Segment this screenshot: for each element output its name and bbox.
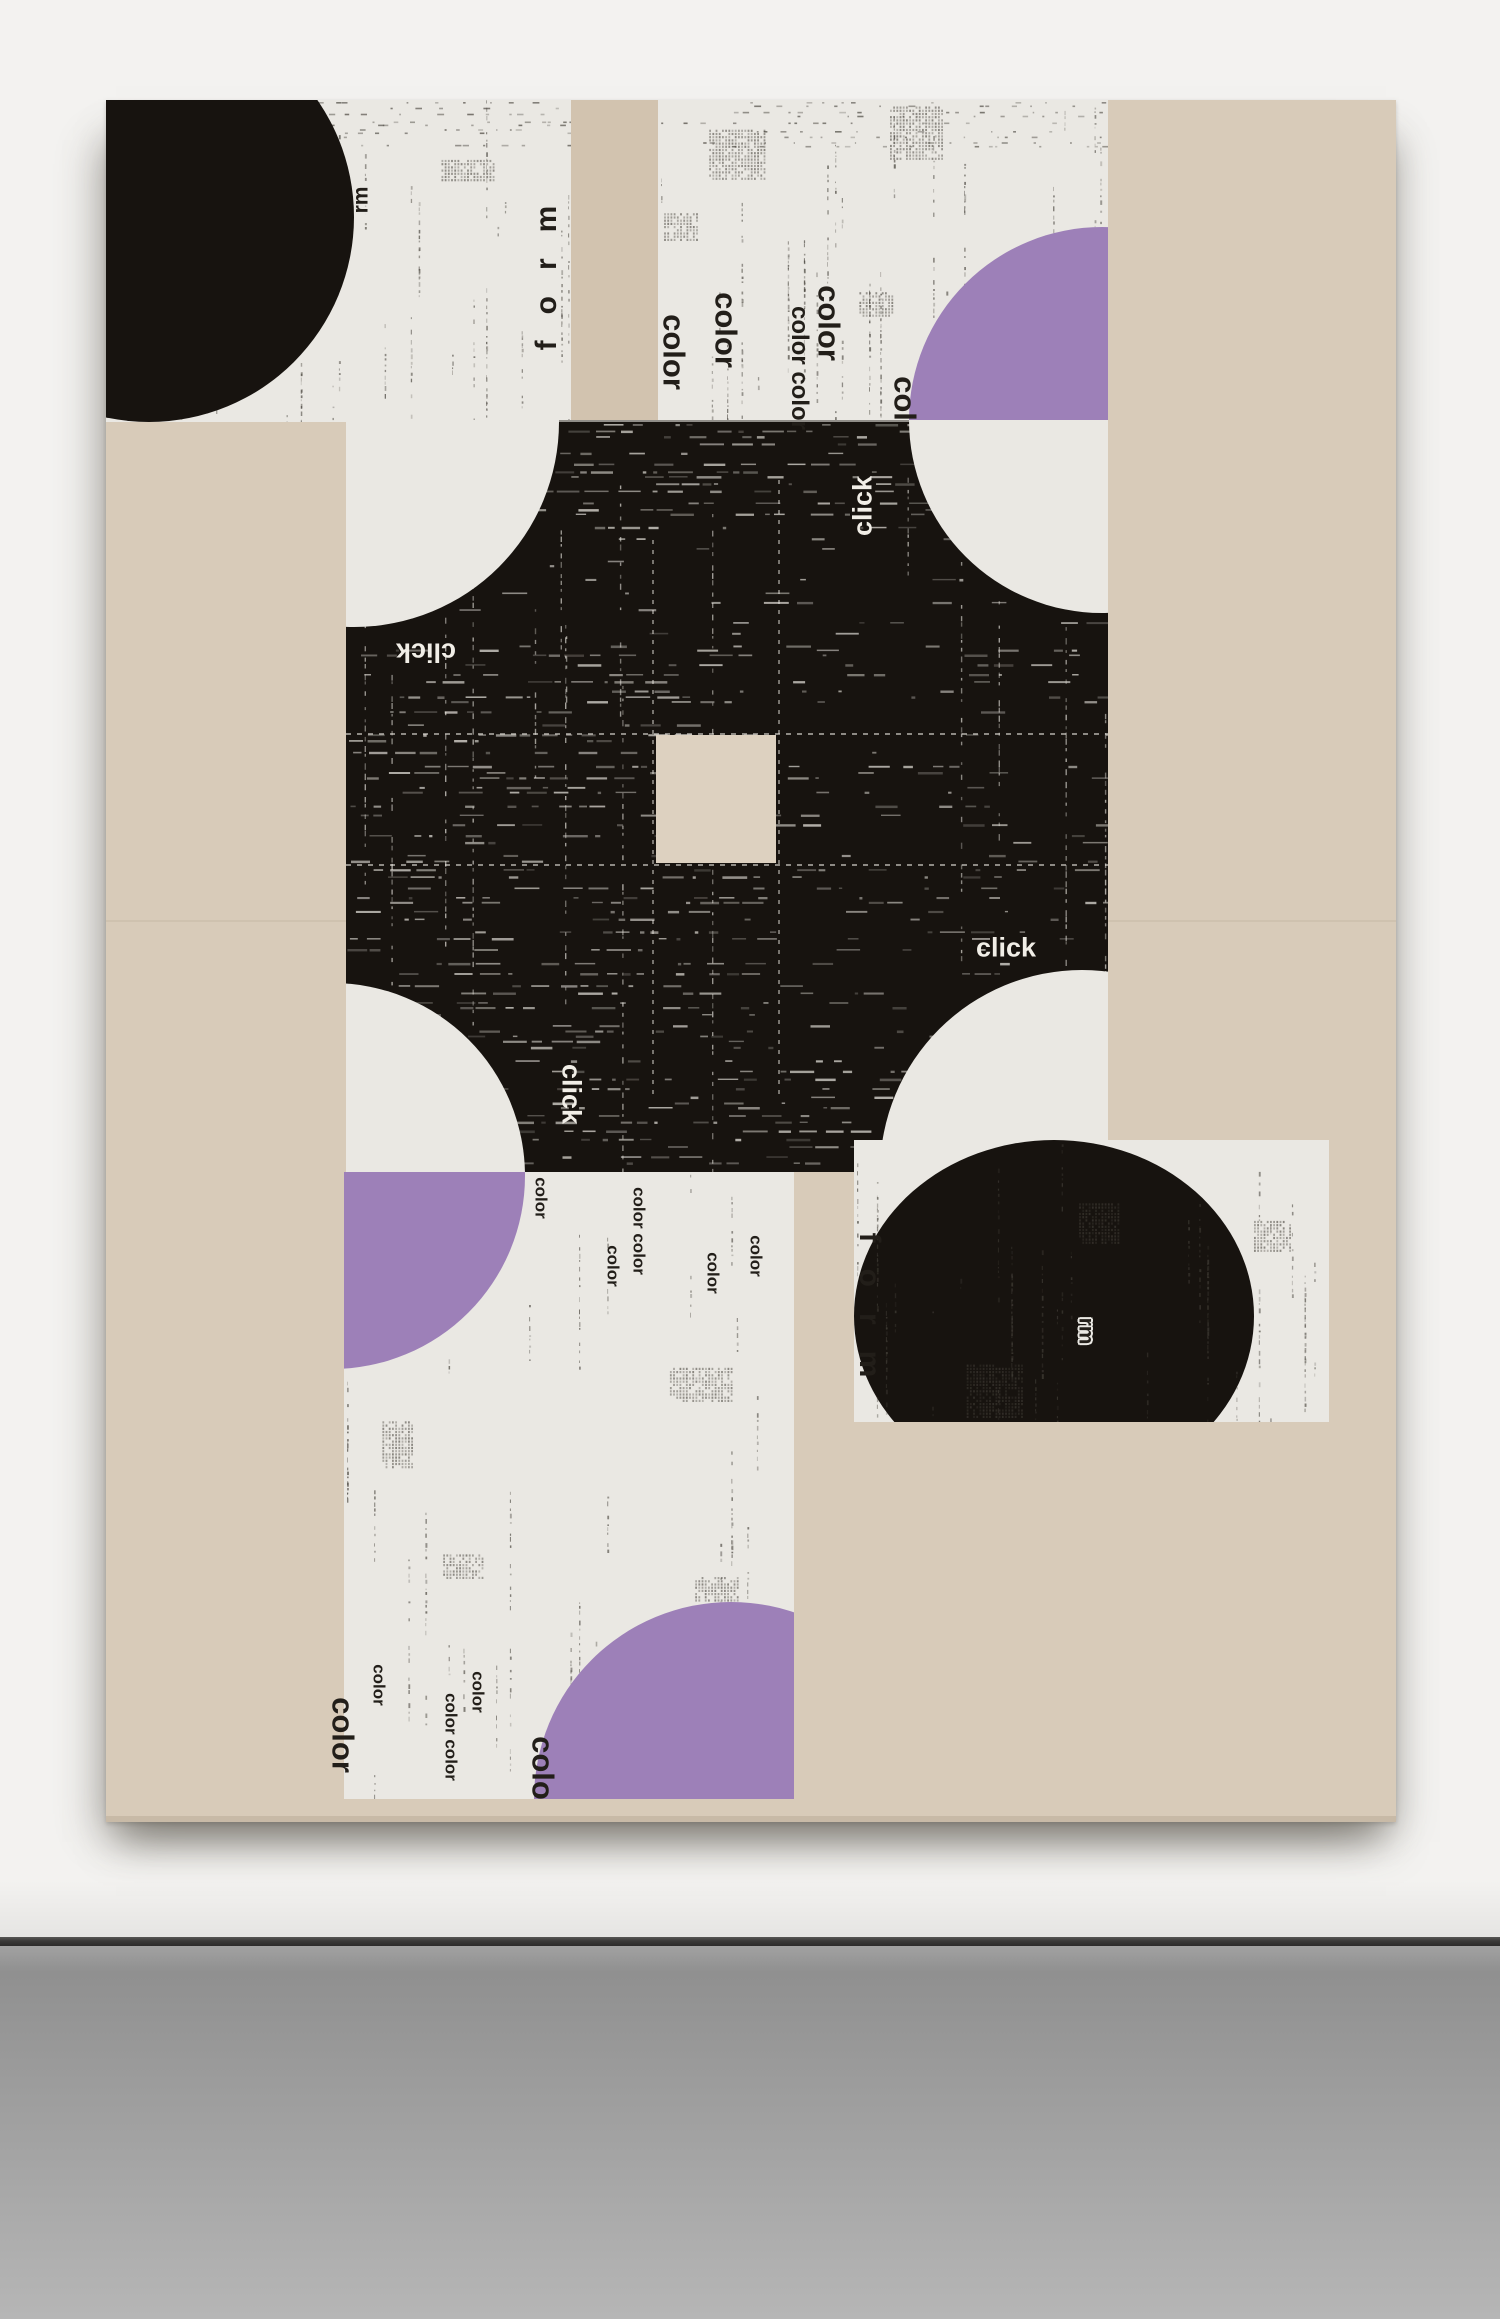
panel-top-right: color	[658, 100, 1108, 422]
wall-shadow-band	[0, 1880, 1500, 1940]
purple-quarter-circle-top-right	[909, 227, 1108, 422]
black-square	[346, 420, 1108, 1172]
black-half-circle-bottom-right	[854, 1140, 1254, 1422]
dotted-rule-left	[652, 540, 654, 1100]
white-quarter-circle-2	[909, 420, 1108, 613]
gallery-photo: color colorcolor rmformcolorcolorcolor c…	[0, 0, 1500, 2319]
panel-bottom-right	[854, 1140, 1329, 1422]
purple-quarter-circle-mid-left	[344, 1172, 525, 1369]
white-quarter-circle-3	[346, 983, 525, 1172]
wall-floor-junction	[0, 1937, 1500, 1946]
word-color: color	[890, 376, 921, 422]
panel-top-left	[106, 100, 571, 422]
floor-sheen	[0, 1946, 1500, 1972]
black-half-circle-top-left	[106, 100, 354, 422]
word-color: color	[533, 1177, 550, 1219]
gallery-floor	[0, 1946, 1500, 2319]
white-quarter-circle-1	[346, 420, 559, 627]
panel-bottom-center: colorcolor	[344, 1172, 794, 1799]
dotted-rule-bottom	[346, 864, 1108, 866]
beige-center-square	[656, 735, 776, 863]
word-color: color	[528, 1736, 559, 1799]
dotted-rule-right	[778, 480, 780, 1100]
artwork-canvas: color colorcolor rmformcolorcolorcolor c…	[106, 100, 1396, 1822]
beige-stripe	[571, 100, 658, 422]
purple-half-circle-bottom	[534, 1602, 794, 1799]
